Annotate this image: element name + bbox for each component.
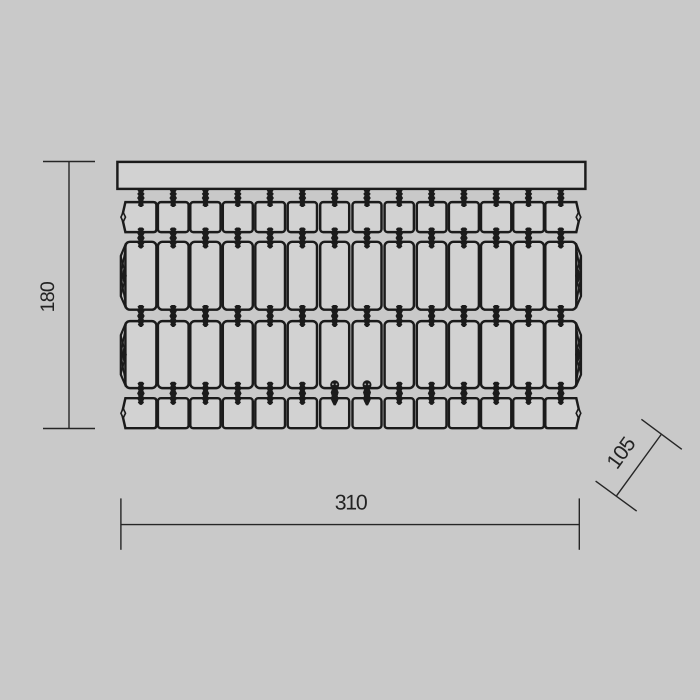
- svg-text:310: 310: [335, 491, 368, 515]
- svg-text:180: 180: [37, 281, 59, 312]
